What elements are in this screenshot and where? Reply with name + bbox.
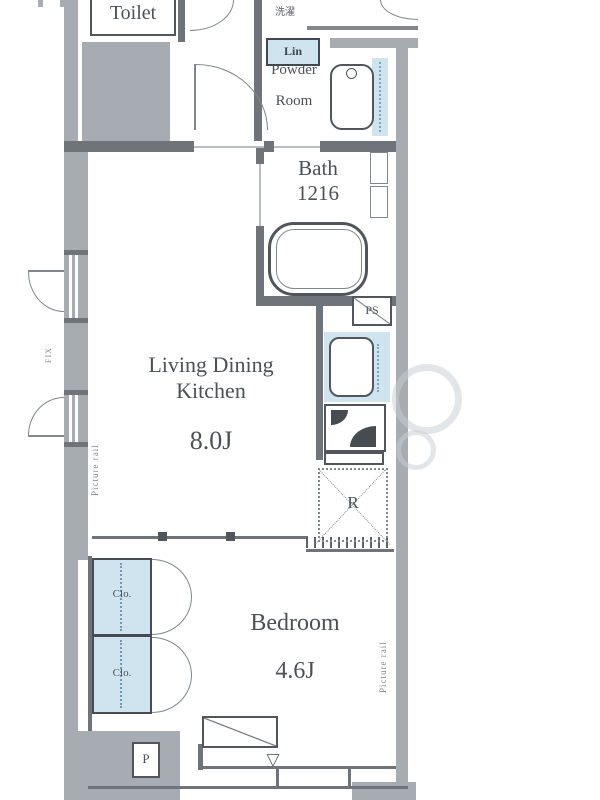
fridge-label: R	[318, 493, 388, 513]
toilet-room: Toilet	[90, 0, 176, 36]
picture-rail-left-label: Picture rail	[90, 418, 100, 522]
folding-door-arc-2	[152, 597, 192, 635]
bedroom-label: Bedroom	[210, 610, 380, 637]
ps-label: PS	[354, 303, 390, 318]
ldk-label-line1: Living Dining	[104, 352, 318, 378]
folding-door-arc-4	[152, 675, 192, 713]
kitchen-sink-dotted	[377, 344, 379, 392]
entry-step	[202, 716, 278, 748]
floor-plan: Toilet 洗濯 Lin Powder Room Bath 1216 PS R	[0, 0, 600, 800]
closet-top-label: Clo.	[94, 588, 150, 600]
hatch-base-line	[306, 549, 394, 552]
toilet-label: Toilet	[92, 2, 174, 25]
glazing-2a	[69, 395, 72, 442]
ldk-label-group: Living Dining Kitchen	[104, 352, 318, 404]
window-post-4	[64, 442, 88, 447]
bedroom-size-label: 4.6J	[220, 658, 370, 685]
wall-bath-ldk-b	[256, 226, 264, 300]
folding-door-arc-1	[152, 559, 192, 597]
closet-bottom-label: Clo.	[94, 667, 150, 679]
pipe-label: P	[134, 751, 158, 767]
wall-bath-top-b	[320, 141, 396, 152]
swing-window-leaf-bottom	[28, 435, 64, 437]
entry-marker: ▽	[258, 750, 288, 770]
partition-post-b	[226, 532, 235, 541]
pipe-box: P	[132, 742, 160, 778]
closet-top: Clo.	[92, 558, 152, 636]
wall-bath-ldk-a	[256, 148, 264, 164]
washbasin-faucet-icon	[346, 68, 357, 79]
entrance-door-arc	[380, 0, 418, 20]
window-bottom-outer	[88, 786, 408, 789]
folding-door-arc-3	[152, 637, 192, 675]
powder-label-line1: Powder	[256, 62, 332, 79]
stove-burner-icon-1	[331, 410, 348, 425]
window-note-label: FIX	[44, 332, 53, 378]
wall-entrance-line	[307, 26, 418, 30]
swing-window-arc-top	[28, 272, 64, 312]
picture-rail-right-label: Picture rail	[378, 612, 388, 722]
swing-window-leaf-top	[28, 270, 64, 272]
glazing-1b	[75, 255, 78, 318]
wall-entrance	[330, 38, 418, 48]
threshold-hall	[194, 146, 264, 148]
bath-door-line	[259, 164, 261, 226]
wall-tick-top-b	[60, 0, 65, 7]
void-top-left	[82, 42, 170, 152]
threshold-bath	[274, 146, 320, 148]
window-bottom-tick-b	[348, 768, 351, 788]
partition-ldk-bedroom	[92, 536, 308, 539]
window-bottom-inner	[202, 766, 396, 769]
wall-bath-top-a	[264, 141, 274, 152]
bath-label: Bath	[276, 156, 360, 181]
window-post-2	[64, 318, 88, 323]
kitchen-sink-bowl	[329, 337, 374, 397]
ldk-size-label: 8.0J	[146, 426, 276, 456]
bath-size-label: 1216	[276, 181, 360, 206]
wall-toilet-hall	[178, 0, 185, 42]
wall-left-window-section	[64, 148, 88, 560]
void-bottom-left	[78, 731, 180, 800]
watermark-ring-large	[392, 364, 462, 434]
partition-post-a	[158, 532, 167, 541]
laundry-label: 洗濯	[262, 3, 308, 18]
bathtub	[268, 222, 368, 296]
closet-bottom: Clo.	[92, 635, 152, 714]
bath-shelf-bottom	[370, 186, 388, 218]
bath-shelf-top	[370, 152, 388, 184]
stove-burner-icon-2	[350, 426, 376, 447]
swing-window-arc-bottom	[28, 397, 64, 435]
powder-door-leaf	[194, 64, 196, 130]
wall-tick-top-a	[38, 0, 43, 7]
glazing-1a	[69, 255, 72, 318]
wall-hall-bottom	[64, 141, 194, 152]
bath-label-group: Bath 1216	[276, 156, 360, 206]
vanity-dotted-line	[379, 62, 381, 132]
stove-box	[324, 404, 386, 452]
ps-box: PS	[352, 296, 392, 326]
counter-end	[324, 452, 384, 465]
powder-label-line2: Room	[256, 93, 332, 110]
ldk-label-line2: Kitchen	[104, 378, 318, 404]
powder-room-label: Powder Room	[256, 62, 332, 110]
bathtub-inner-line	[276, 229, 362, 289]
toilet-door-arc	[190, 0, 234, 31]
glazing-2b	[75, 395, 78, 442]
watermark-ring-small	[396, 430, 436, 470]
window-bottom-tick-a	[276, 768, 279, 788]
wall-bottom-right	[352, 782, 416, 800]
linen-label: Lin	[268, 44, 318, 59]
